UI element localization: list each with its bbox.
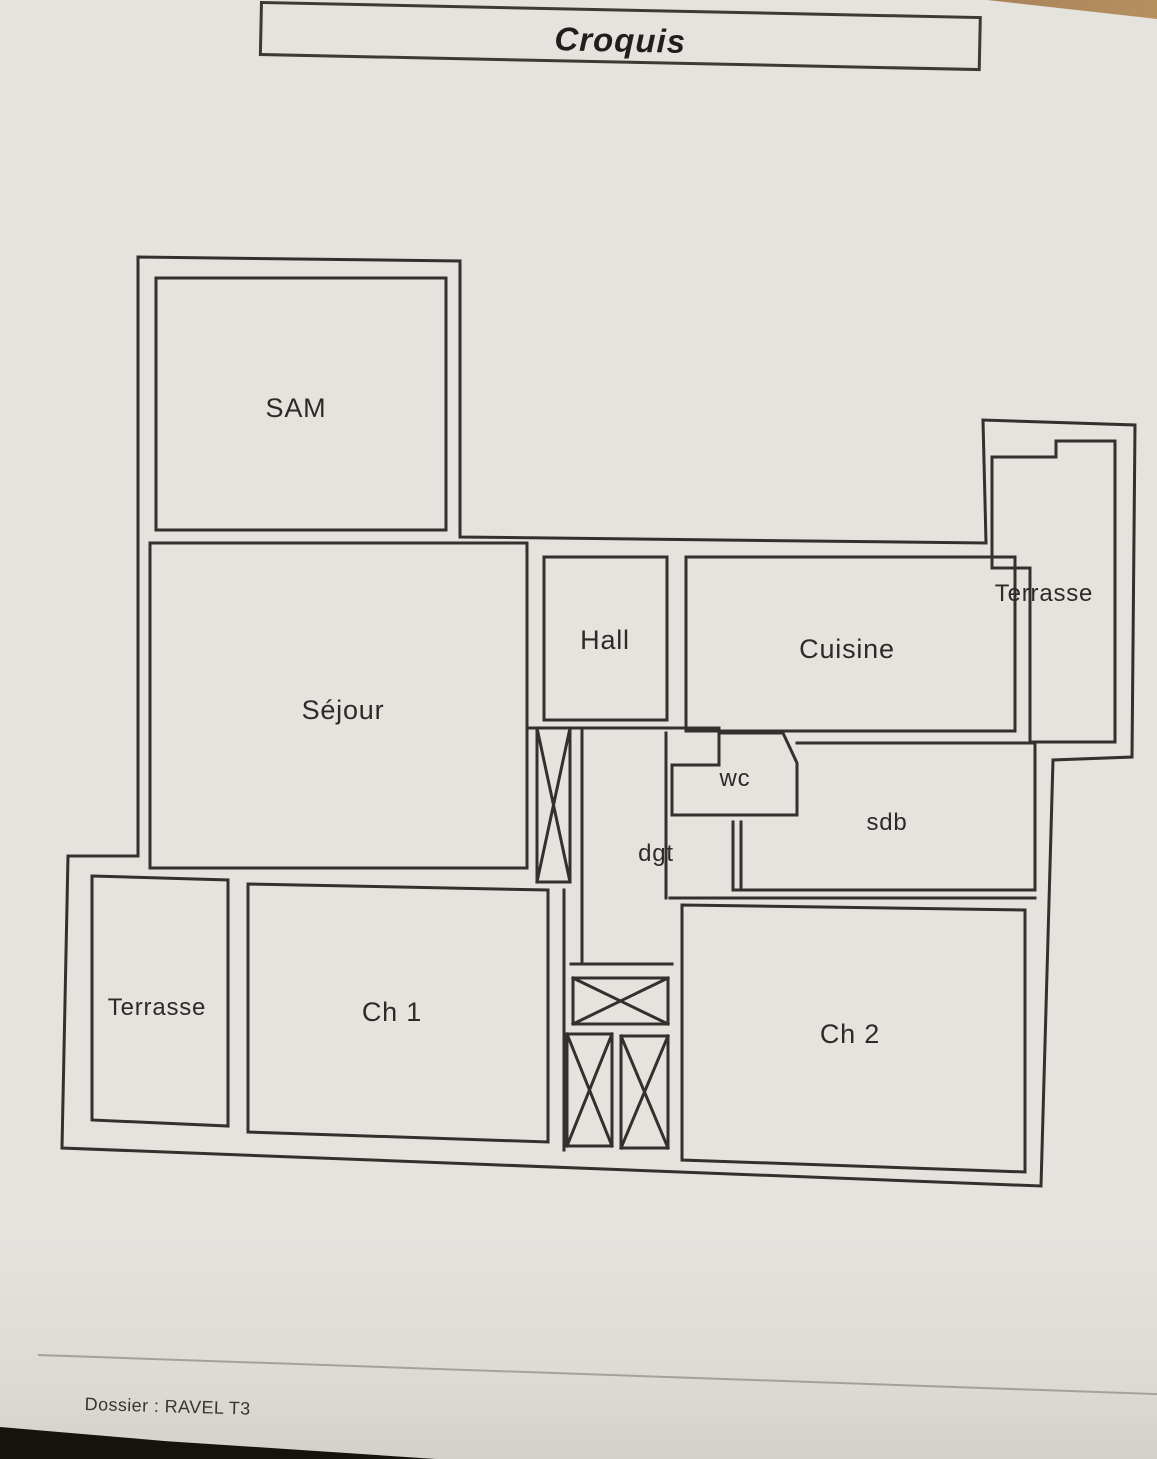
room-sdb-label: sdb bbox=[866, 809, 907, 836]
photo-of-document: Croquis bbox=[0, 0, 1157, 1459]
room-ch1-label: Ch 1 bbox=[362, 997, 422, 1027]
room-terrasse-bottom-label: Terrasse bbox=[108, 994, 206, 1021]
window-symbol-closet-right bbox=[621, 1036, 668, 1148]
window-symbol-corridor-horizontal bbox=[573, 978, 668, 1024]
room-terrasse-top-label: Terrasse bbox=[995, 580, 1093, 607]
floor-plan-drawing: SAM Séjour Hall Cuisine Terrasse wc sdb … bbox=[0, 0, 1157, 1459]
room-sejour-label: Séjour bbox=[302, 695, 385, 725]
window-symbol-sejour-dgt bbox=[537, 728, 570, 882]
room-ch2-label: Ch 2 bbox=[820, 1019, 880, 1049]
window-symbol-closet-left bbox=[567, 1034, 612, 1146]
room-hall-label: Hall bbox=[580, 625, 630, 655]
room-sam-label: SAM bbox=[266, 393, 327, 423]
corridor-dgt-label: dgt bbox=[638, 840, 674, 867]
room-cuisine-label: Cuisine bbox=[799, 634, 895, 664]
room-wc-label: wc bbox=[719, 765, 751, 792]
